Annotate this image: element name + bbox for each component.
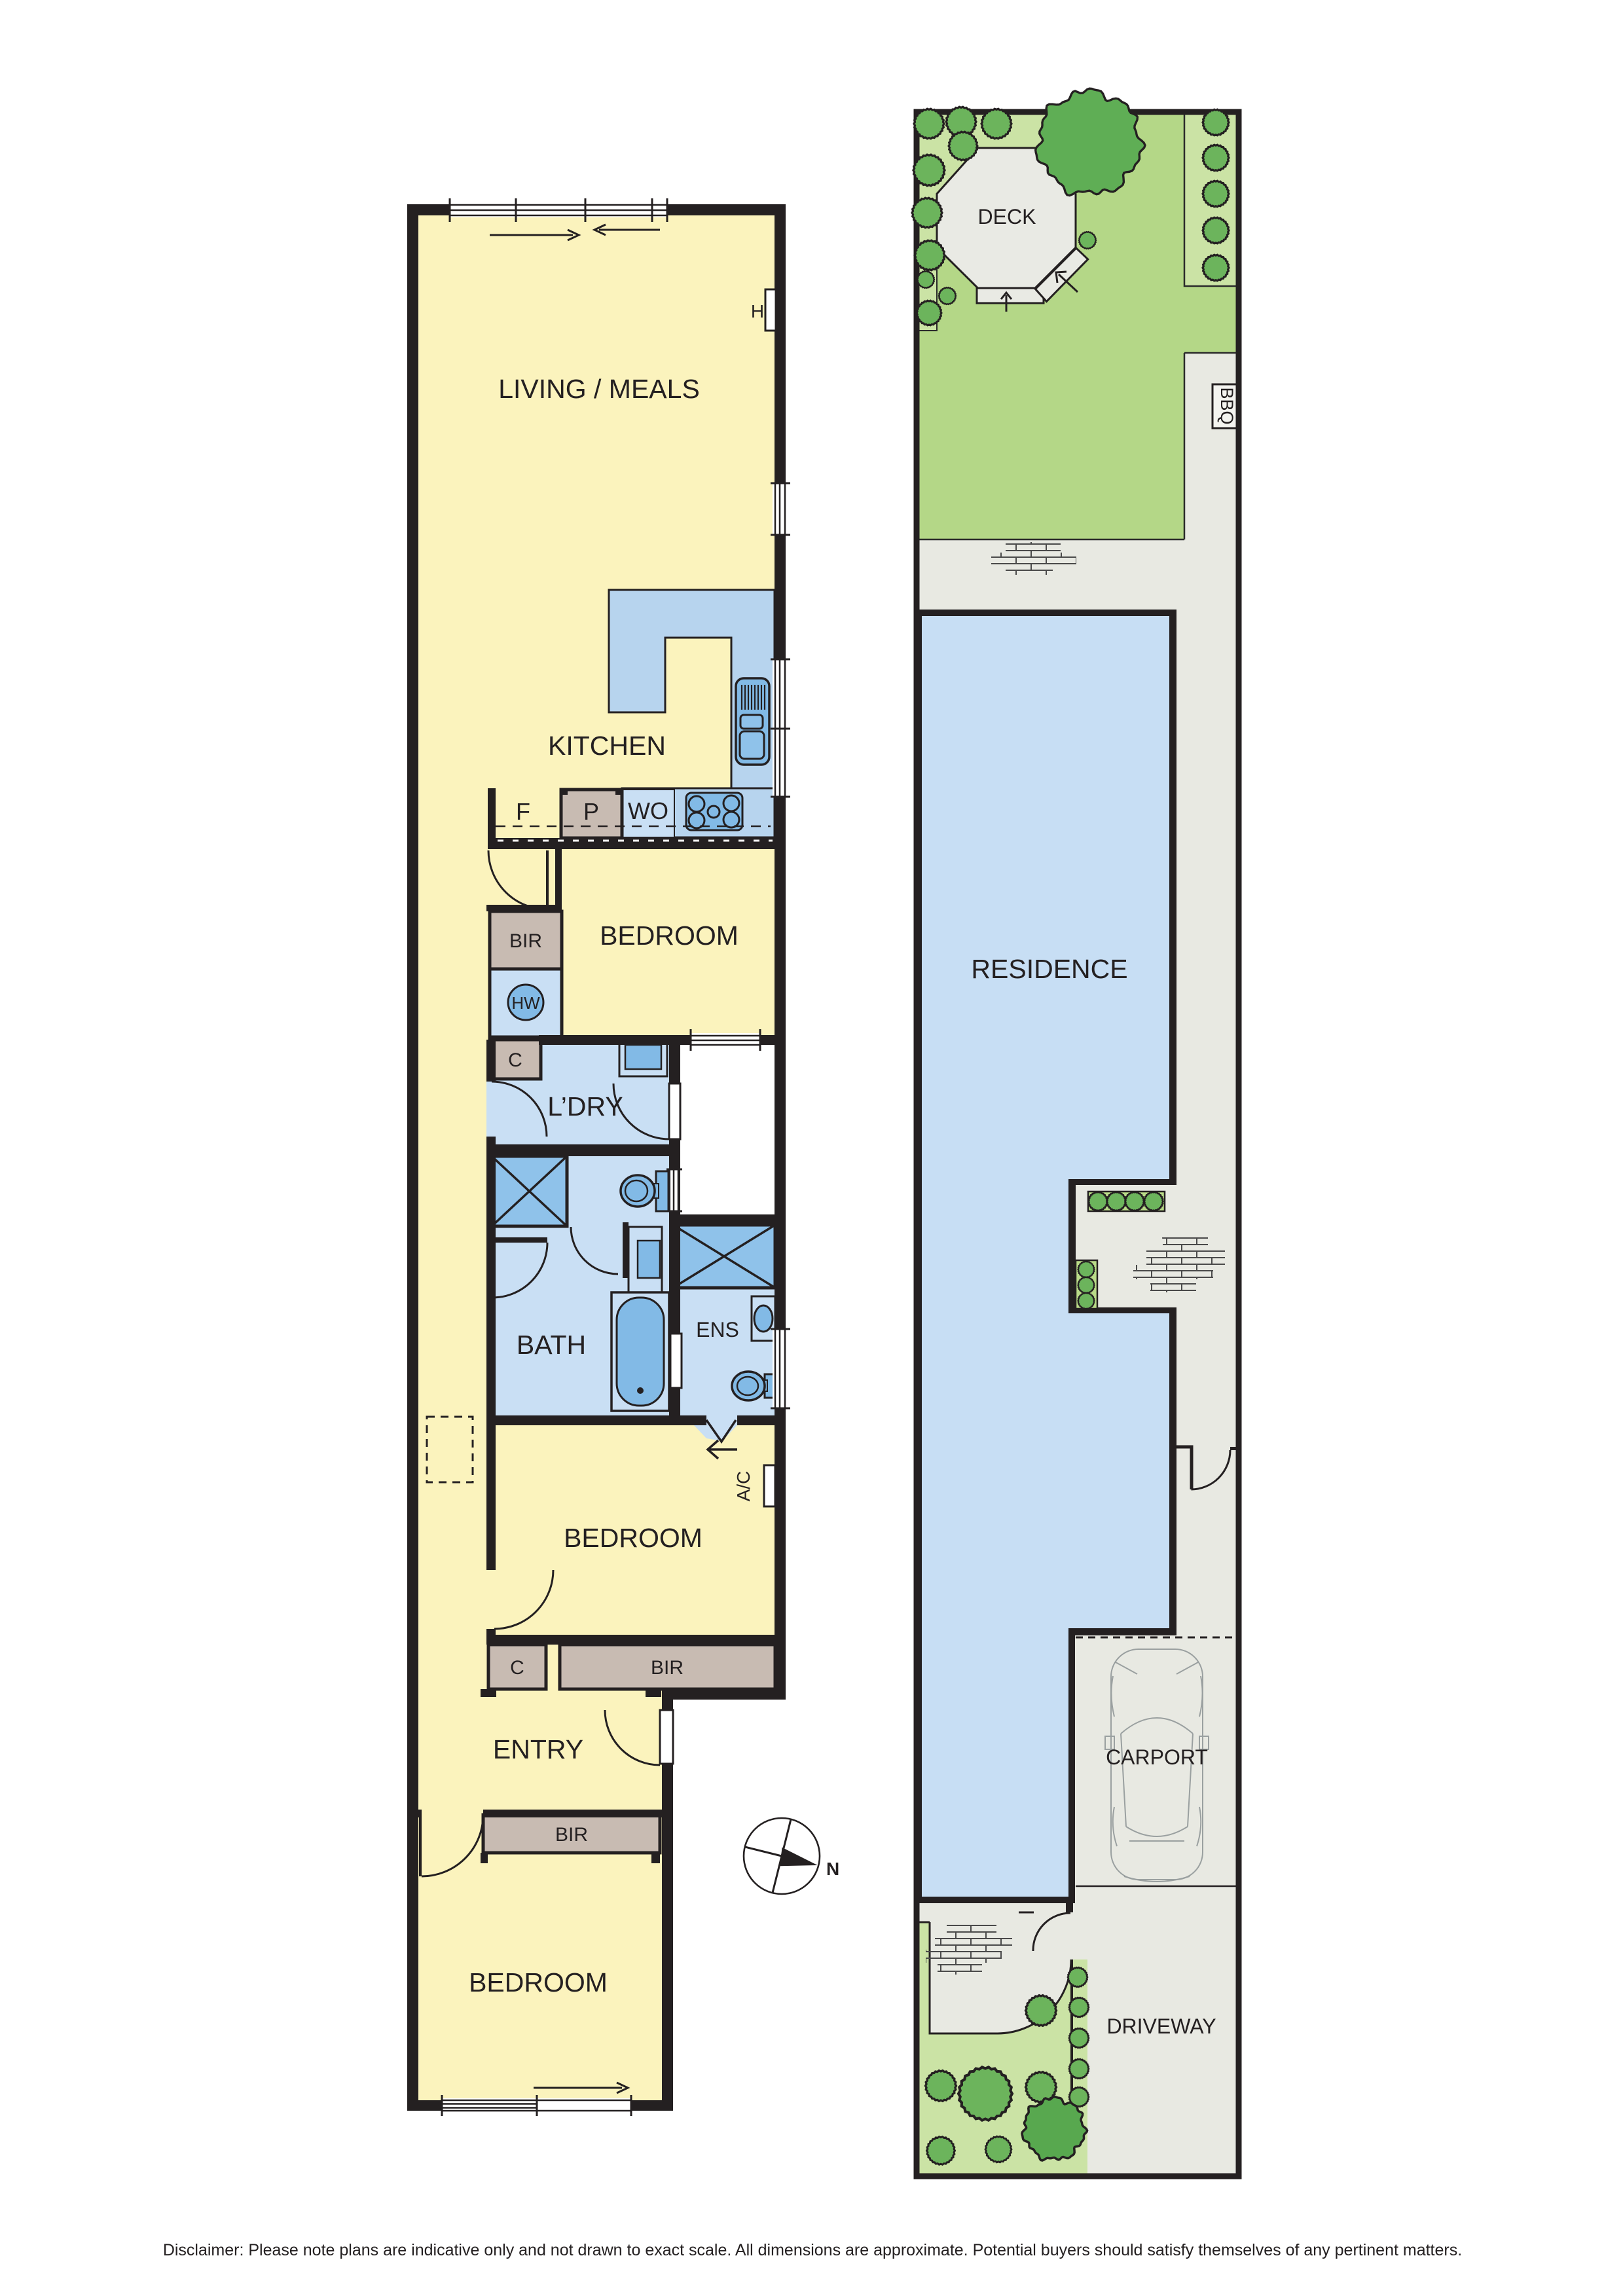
svg-text:A/C: A/C [733, 1471, 754, 1502]
svg-text:BIR: BIR [509, 930, 542, 952]
svg-text:HW: HW [511, 993, 540, 1013]
svg-text:WO: WO [628, 797, 668, 824]
svg-text:P: P [583, 798, 599, 825]
svg-text:H: H [751, 301, 764, 321]
svg-text:C: C [508, 1049, 522, 1071]
svg-text:BEDROOM: BEDROOM [600, 920, 739, 951]
svg-text:BEDROOM: BEDROOM [564, 1523, 702, 1553]
svg-text:F: F [516, 798, 530, 825]
svg-text:ENTRY: ENTRY [493, 1734, 583, 1764]
svg-text:BIR: BIR [555, 1824, 588, 1846]
svg-text:N: N [826, 1859, 839, 1879]
svg-text:RESIDENCE: RESIDENCE [971, 954, 1127, 984]
svg-text:BIR: BIR [651, 1657, 684, 1679]
svg-text:C: C [510, 1657, 524, 1679]
svg-text:DECK: DECK [978, 205, 1036, 228]
svg-text:ENS: ENS [696, 1318, 739, 1341]
svg-text:DRIVEWAY: DRIVEWAY [1106, 2014, 1216, 2038]
svg-text:L’DRY: L’DRY [547, 1091, 623, 1121]
svg-text:Disclaimer: Please note plans: Disclaimer: Please note plans are indica… [163, 2241, 1462, 2259]
svg-text:LIVING / MEALS: LIVING / MEALS [498, 374, 700, 404]
svg-text:BATH: BATH [517, 1330, 586, 1360]
svg-text:KITCHEN: KITCHEN [548, 731, 666, 761]
svg-text:BEDROOM: BEDROOM [469, 1967, 608, 1997]
svg-text:BBQ: BBQ [1217, 387, 1237, 424]
svg-text:CARPORT: CARPORT [1106, 1745, 1208, 1769]
